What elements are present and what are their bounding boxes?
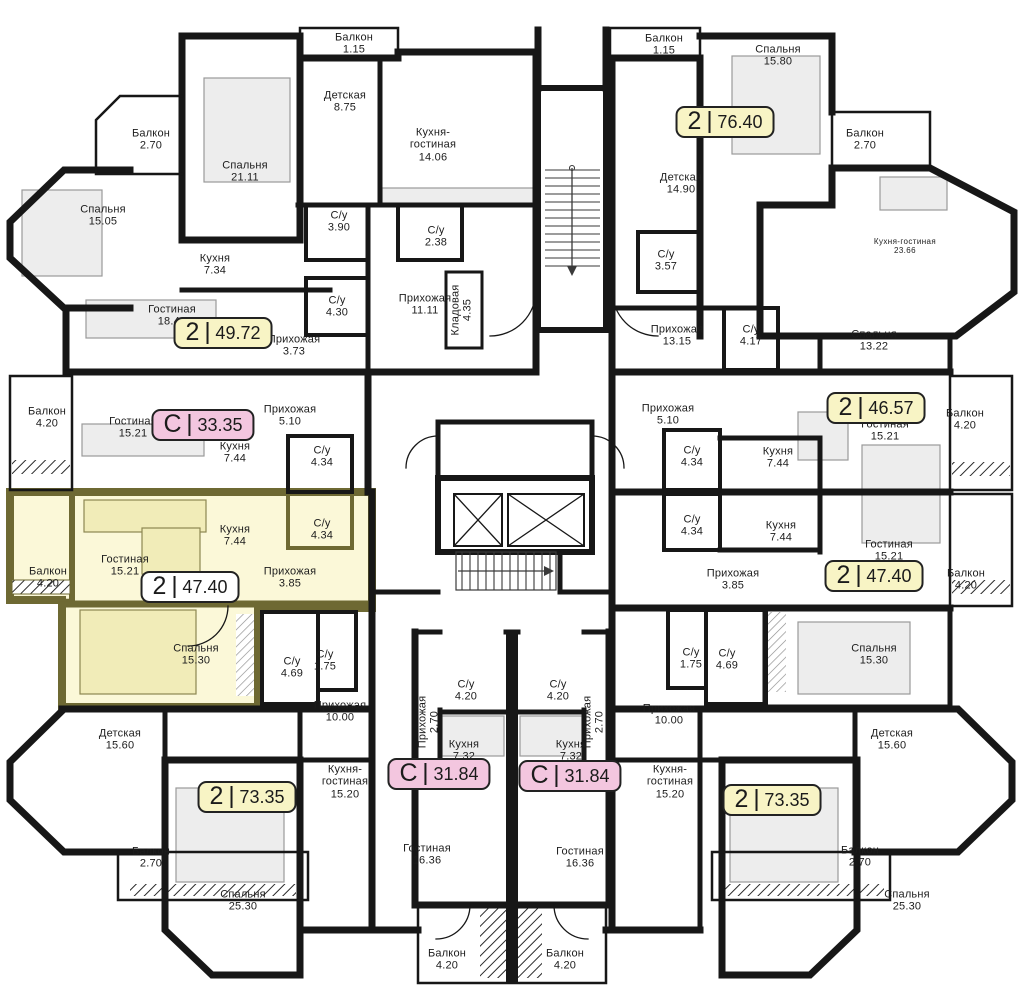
room-label: Прихожая5.10	[264, 404, 317, 429]
room-label: Кухня-гостиная14.06	[396, 127, 470, 164]
room-label: С/у4.34	[311, 518, 333, 543]
structural-wall	[506, 634, 518, 905]
room-label: Прихожая13.15	[651, 324, 704, 349]
room-label: Прихожая11.11	[399, 293, 452, 318]
badge-divider	[206, 322, 208, 344]
apartment-badge[interactable]: 249.72	[174, 317, 273, 349]
sofa	[84, 500, 206, 532]
badge-divider	[425, 763, 427, 785]
floor-plan: Балкон2.70 Спальня21.11 Спальня15.05 Кух…	[0, 0, 1022, 1000]
room-label: Кухня7.44	[220, 441, 250, 466]
badge-divider	[859, 397, 861, 419]
badge-divider	[556, 765, 558, 787]
room-label: Детская15.60	[99, 728, 141, 753]
room-label: Кухня7.44	[766, 520, 796, 545]
room-label: Кухня-гостиная15.20	[633, 764, 707, 801]
room-label: Прихожая2.70	[417, 696, 442, 749]
room-label: С/у4.20	[547, 679, 569, 704]
room-label: Кухня7.44	[220, 524, 250, 549]
room-label: С/у4.20	[455, 679, 477, 704]
room-label: Прихожая10.00	[314, 700, 367, 725]
room-label: Спальня25.30	[220, 889, 266, 914]
room-label: С/у4.17	[740, 324, 762, 349]
room-label: Балкон2.70	[846, 128, 884, 153]
room-label: Кладовая4.35	[450, 285, 475, 336]
room-label: Кухня7.34	[200, 253, 230, 278]
room-label: С/у2.38	[425, 225, 447, 250]
room-label: С/у3.90	[328, 210, 350, 235]
room-label: Балкон4.20	[546, 948, 584, 973]
room-label: Прихожая3.85	[707, 568, 760, 593]
room-label: Прихожая10.00	[643, 703, 696, 728]
badge-divider	[173, 576, 175, 598]
sofa	[880, 177, 947, 210]
room-label: Спальня25.30	[884, 889, 930, 914]
room-label: Спальня15.80	[755, 44, 801, 69]
wardrobe	[236, 614, 254, 696]
dining-table	[142, 528, 200, 574]
apartment-badge[interactable]: С31.84	[518, 760, 621, 792]
room-label: С/у4.69	[281, 656, 303, 681]
room-label: Спальня13.22	[851, 329, 897, 354]
room-label: Балкон4.20	[428, 948, 466, 973]
room-label: Балкон4.20	[947, 568, 985, 593]
room-label: Балкон4.20	[29, 566, 67, 591]
room-label: Спальня15.30	[851, 643, 897, 668]
room-label: С/у4.69	[716, 648, 738, 673]
badge-divider	[189, 414, 191, 436]
room-label: Балкон1.15	[335, 32, 373, 57]
room-label: Балкон2.70	[132, 128, 170, 153]
room-label: Балкон2.70	[841, 845, 879, 870]
room-label: С/у4.30	[326, 295, 348, 320]
elevator-shaft	[438, 478, 592, 552]
room-label: С/у3.57	[655, 249, 677, 274]
room-label: Балкон1.15	[645, 33, 683, 58]
room-label: Кухня-гостиная23.66	[874, 238, 936, 256]
apartment-badge[interactable]: 273.35	[198, 781, 297, 813]
room-label: Спальня21.11	[222, 160, 268, 185]
room-label: Гостиная16.36	[403, 843, 451, 868]
room-label: Спальня15.05	[80, 204, 126, 229]
badge-divider	[755, 789, 757, 811]
apartment-badge-highlighted[interactable]: 247.40	[141, 571, 240, 603]
room-label: Детская14.90	[660, 172, 702, 197]
room-label: Гостиная16.36	[556, 846, 604, 871]
staircase-upper	[538, 88, 606, 330]
room-label: Спальня15.30	[173, 643, 219, 668]
bed	[732, 56, 820, 154]
kitchen-counter	[382, 188, 536, 204]
room-label: С/у4.34	[681, 445, 703, 470]
apartment-badge[interactable]: 276.40	[676, 106, 775, 138]
apartment-badge[interactable]: С33.35	[151, 409, 254, 441]
room-label: С/у1.75	[314, 649, 336, 674]
apartment-badge[interactable]: 246.57	[827, 392, 926, 424]
room-label: Прихожая3.85	[264, 566, 317, 591]
room-label: Детская15.60	[871, 728, 913, 753]
room-label: Балкон4.20	[28, 406, 66, 431]
staircase-lower	[456, 552, 556, 590]
room-label: Балкон4.20	[946, 408, 984, 433]
room-label: Прихожая5.10	[642, 403, 695, 428]
structural-wall	[506, 905, 518, 983]
room-label: С/у4.34	[681, 514, 703, 539]
apartment-badge[interactable]: 247.40	[825, 560, 924, 592]
badge-divider	[857, 565, 859, 587]
badge-divider	[230, 786, 232, 808]
apartment-badge[interactable]: 273.35	[723, 784, 822, 816]
room-label: Гостиная15.21	[109, 416, 157, 441]
room-label: С/у1.75	[680, 647, 702, 672]
room-label: Кухня-гостиная15.20	[308, 764, 382, 801]
room-label: Детская8.75	[324, 90, 366, 115]
room-label: С/у4.34	[311, 445, 333, 470]
badge-divider	[708, 111, 710, 133]
room-label: Балкон2.70	[132, 846, 170, 871]
apartment-badge[interactable]: С31.84	[387, 758, 490, 790]
room-label: Прихожая3.73	[268, 334, 321, 359]
wardrobe	[768, 612, 786, 692]
room-label: Кухня7.44	[763, 446, 793, 471]
